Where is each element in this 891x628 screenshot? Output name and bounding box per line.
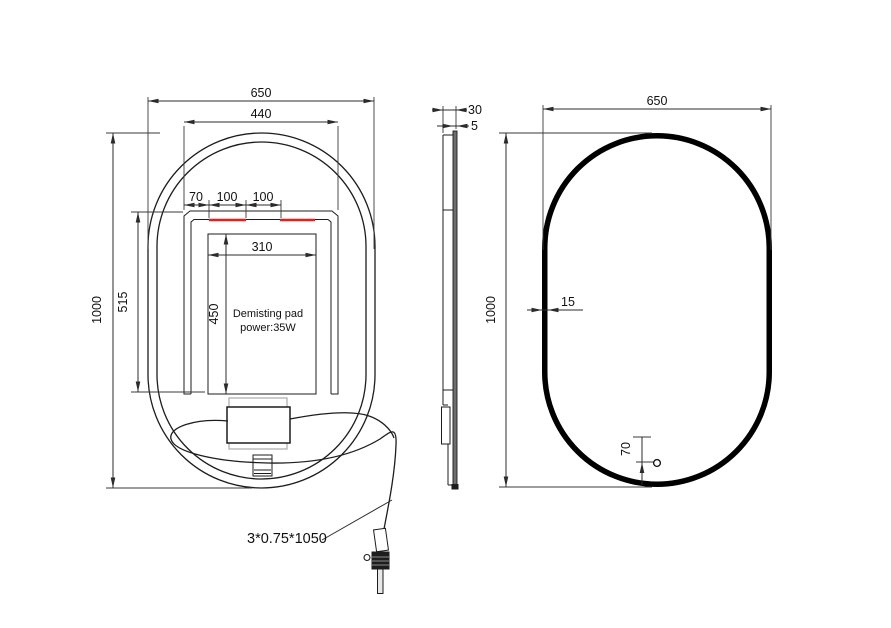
led-frame-outer-edge (184, 211, 338, 394)
touch-switch-dot (654, 460, 661, 467)
dim-front-touch-chain: 70 100 100 (184, 190, 281, 218)
side-back-panel (443, 135, 453, 405)
dim-front-100b-label: 100 (253, 190, 274, 204)
dim-front-100a-label: 100 (217, 190, 238, 204)
dim-450-label: 450 (207, 304, 221, 325)
plug-prong (378, 569, 384, 594)
dim-15-label: 15 (561, 295, 575, 309)
dim-5-label: 5 (471, 119, 478, 133)
plug-ring (364, 555, 370, 561)
side-mirror-glass (453, 131, 457, 489)
power-plug (364, 528, 389, 593)
side-view: 30 5 (432, 103, 482, 490)
dim-front-1000-label: 1000 (90, 296, 104, 324)
demisting-pad-label-line1: Demisting pad (233, 308, 303, 320)
back-view: 650 1000 15 70 (484, 94, 771, 487)
dim-pad-width: 310 (208, 240, 316, 255)
dim-pad-height: 450 (207, 234, 226, 394)
drawing-canvas: Demisting pad power:35W 3*0.75*1050 (0, 0, 891, 628)
mirror-technical-drawing: Demisting pad power:35W 3*0.75*1050 (0, 0, 891, 628)
cable-leader-line (322, 500, 392, 540)
side-bottom-foot (452, 484, 459, 490)
cable-connector (253, 455, 272, 476)
side-driver-box (442, 407, 451, 444)
dim-515-label: 515 (116, 292, 130, 313)
power-cable-exit (290, 413, 394, 438)
dim-front-70-label: 70 (189, 190, 203, 204)
dim-led-frame-width: 15 (527, 295, 583, 310)
front-view: Demisting pad power:35W 3*0.75*1050 (90, 86, 396, 594)
demisting-pad-label-line2: power:35W (240, 322, 296, 334)
dim-backpanel-height: 515 (116, 212, 205, 392)
dim-30-label: 30 (468, 103, 482, 117)
driver-box (227, 407, 290, 443)
plug-boot (374, 528, 389, 551)
plug-body (372, 552, 389, 569)
dim-front-440-label: 440 (251, 107, 272, 121)
dim-70-label: 70 (619, 442, 633, 456)
dim-310-label: 310 (252, 240, 273, 254)
dim-back-1000-label: 1000 (484, 296, 498, 324)
cable-spec-label: 3*0.75*1050 (247, 531, 327, 547)
dim-back-650-label: 650 (647, 94, 668, 108)
dim-front-650-label: 650 (251, 86, 272, 100)
